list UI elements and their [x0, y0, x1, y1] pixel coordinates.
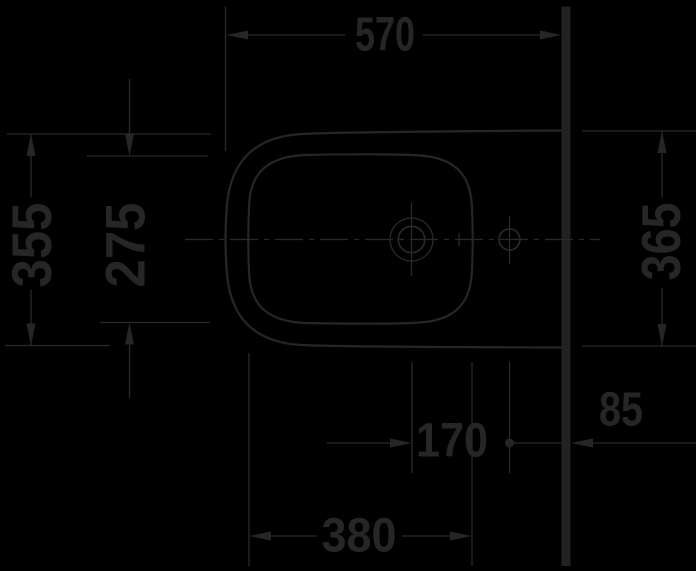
- dimension-drawing-canvas: 570 355 275: [0, 0, 696, 571]
- dim-overall-depth: 570: [226, 7, 562, 152]
- arrowhead-left: [571, 439, 593, 448]
- dim-drain-to-supply-label: 170: [416, 415, 488, 468]
- fixture-geometry: [185, 7, 600, 567]
- arrowhead-left: [390, 439, 412, 448]
- technical-drawing: 570 355 275: [0, 0, 696, 571]
- dim-overall-width-at-wall-label: 365: [630, 203, 692, 281]
- dim-overall-width-at-wall: 365: [582, 131, 696, 346]
- dim-basin-inner-width-label: 275: [94, 203, 157, 288]
- arrowhead-bottom: [125, 323, 134, 345]
- arrowhead-top: [125, 134, 134, 156]
- arrowhead-top: [658, 131, 667, 153]
- arrowhead-bottom: [27, 324, 36, 346]
- arrowhead-top: [27, 134, 36, 156]
- dim-supply-to-wall-label: 85: [599, 384, 643, 437]
- dim-overall-depth-label: 570: [355, 9, 415, 62]
- dimension-dot: [505, 439, 514, 448]
- wall-line: [562, 7, 571, 567]
- arrowhead-left: [249, 532, 271, 541]
- dim-overall-width-front-label: 355: [0, 203, 63, 288]
- arrowhead-right: [540, 31, 562, 40]
- dim-drain-to-supply: 170: [327, 415, 561, 468]
- arrowhead-right: [450, 532, 472, 541]
- dim-basin-inner-width: 275: [87, 79, 210, 398]
- dim-basin-inner-length-label: 380: [322, 510, 397, 563]
- dim-supply-to-wall: 85: [571, 384, 696, 448]
- arrowhead-bottom: [658, 324, 667, 346]
- dim-basin-inner-length: 380: [249, 510, 472, 563]
- arrowhead-left: [227, 31, 249, 40]
